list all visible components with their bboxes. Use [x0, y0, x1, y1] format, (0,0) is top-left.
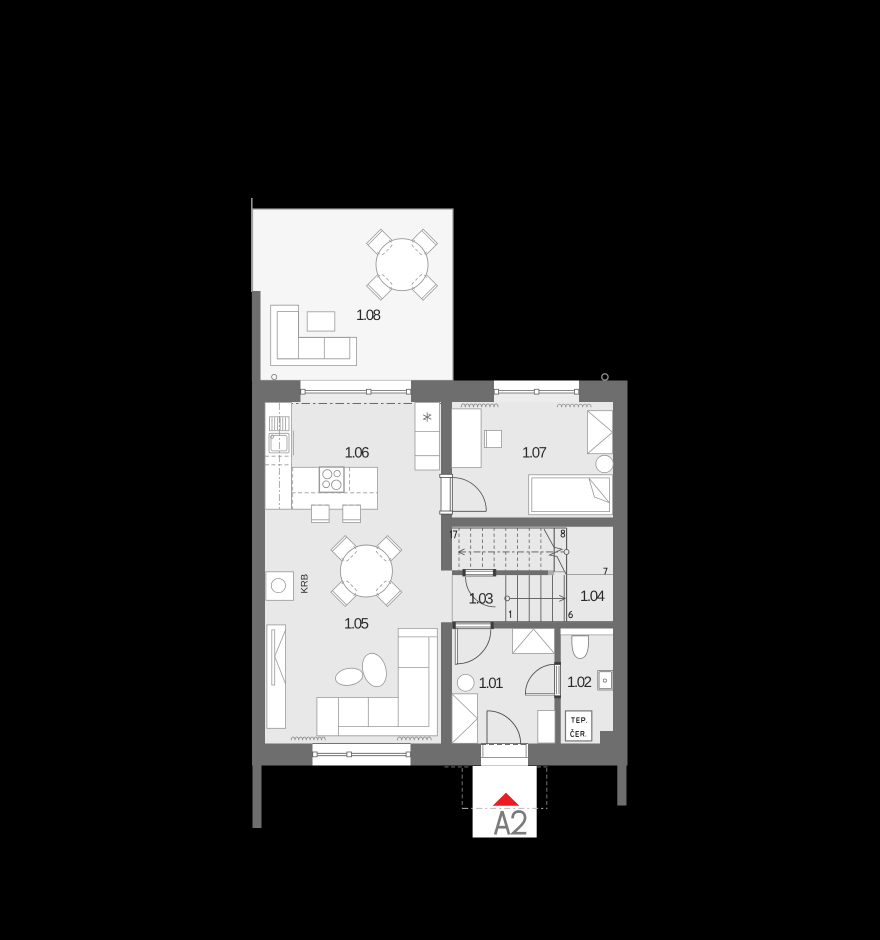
svg-text:1.03: 1.03: [469, 591, 494, 608]
svg-text:1.06: 1.06: [345, 445, 370, 462]
svg-text:1.08: 1.08: [356, 307, 381, 324]
svg-text:1.01: 1.01: [479, 675, 504, 692]
svg-text:1.02: 1.02: [567, 674, 592, 691]
svg-text:1.05: 1.05: [344, 616, 369, 633]
svg-text:1.04: 1.04: [580, 588, 605, 605]
svg-text:KRB: KRB: [300, 574, 311, 594]
svg-text:1.07: 1.07: [522, 445, 547, 462]
